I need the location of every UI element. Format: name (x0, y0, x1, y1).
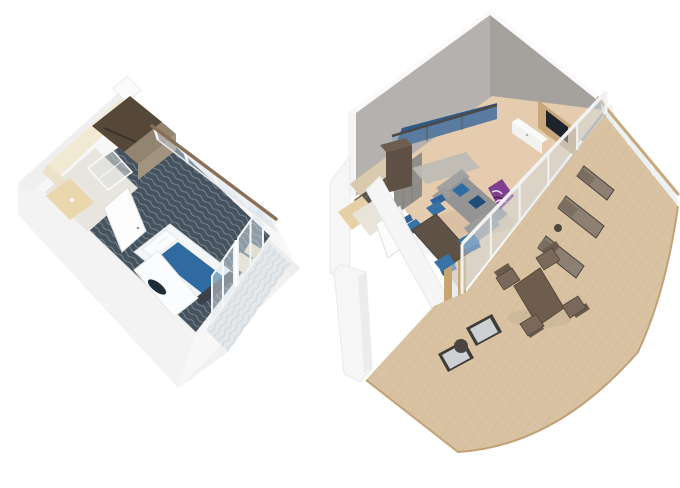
credenza-knob (526, 134, 528, 136)
stateroom-plan (18, 76, 300, 388)
loft-suite-plan (330, 9, 680, 470)
floorplans-illustration (0, 0, 680, 488)
balcony-door-glass (452, 261, 458, 302)
door-handle (137, 227, 140, 230)
deck-side-wall (334, 264, 372, 382)
loft-cabinet (386, 145, 412, 193)
floorplans-canvas (0, 0, 680, 488)
sink (70, 198, 74, 202)
round-side-table (454, 339, 468, 353)
lounger-side-table (554, 224, 562, 232)
